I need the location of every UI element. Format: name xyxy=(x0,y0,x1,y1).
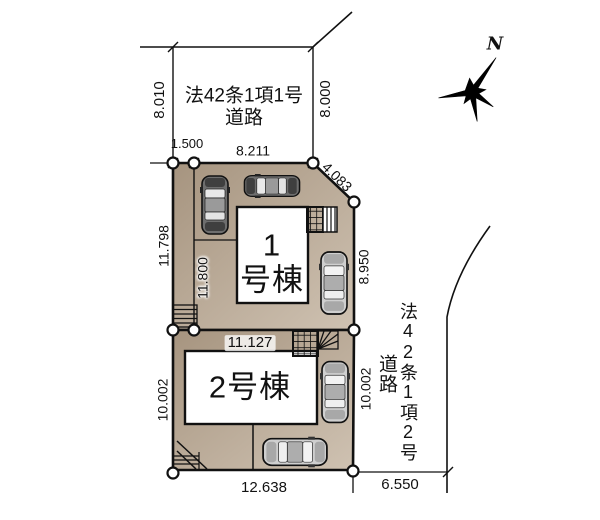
compass-rose-icon xyxy=(439,58,497,122)
balcony-2-grid xyxy=(293,331,318,356)
top-road-name-line2: 道路 xyxy=(185,108,303,130)
building-1-number: 1 xyxy=(240,228,304,263)
car-icon xyxy=(263,437,327,468)
car-icon xyxy=(200,176,230,234)
dim-lot2-top: 11.127 xyxy=(225,335,276,351)
dim-bottom-road: 6.550 xyxy=(381,477,419,493)
dim-lot1-left-outer: 11.798 xyxy=(157,225,172,267)
dim-lot2-right: 10.002 xyxy=(359,368,374,411)
porch-1 xyxy=(323,207,337,232)
car-icon xyxy=(319,252,349,314)
dim-lot2-bottom: 12.638 xyxy=(241,480,287,496)
site-plan: 法42条1項1号 道路 8.010 8.000 1.500 8.211 4.08… xyxy=(0,0,600,520)
car-icon xyxy=(320,362,350,423)
right-road-far-edge xyxy=(447,226,490,493)
building-1-label: 1 号棟 xyxy=(240,228,304,297)
dim-lot1-right: 8.950 xyxy=(357,249,372,284)
building-1-suffix: 号棟 xyxy=(240,263,304,298)
top-road-name-line1: 法42条1項1号 xyxy=(185,86,303,108)
right-road-name: 法42条1項2号 xyxy=(399,302,417,462)
top-road-far-edge xyxy=(140,12,352,47)
dim-road-width-left: 8.010 xyxy=(152,81,168,119)
dim-setback-top: 1.500 xyxy=(171,137,204,151)
compass-north-label: N xyxy=(487,36,503,55)
dim-lot1-left-inner: 11.800 xyxy=(196,257,211,299)
top-road-name: 法42条1項1号 道路 xyxy=(185,86,303,131)
dim-road-width-right: 8.000 xyxy=(318,80,334,118)
balcony-1-grid xyxy=(307,207,323,232)
building-2-label: 2号棟 xyxy=(209,371,291,406)
car-icon xyxy=(244,174,299,198)
right-road-suffix: 道路 xyxy=(377,354,396,394)
dim-lot1-top: 8.211 xyxy=(236,144,270,159)
dim-lot2-left: 10.002 xyxy=(156,379,171,422)
